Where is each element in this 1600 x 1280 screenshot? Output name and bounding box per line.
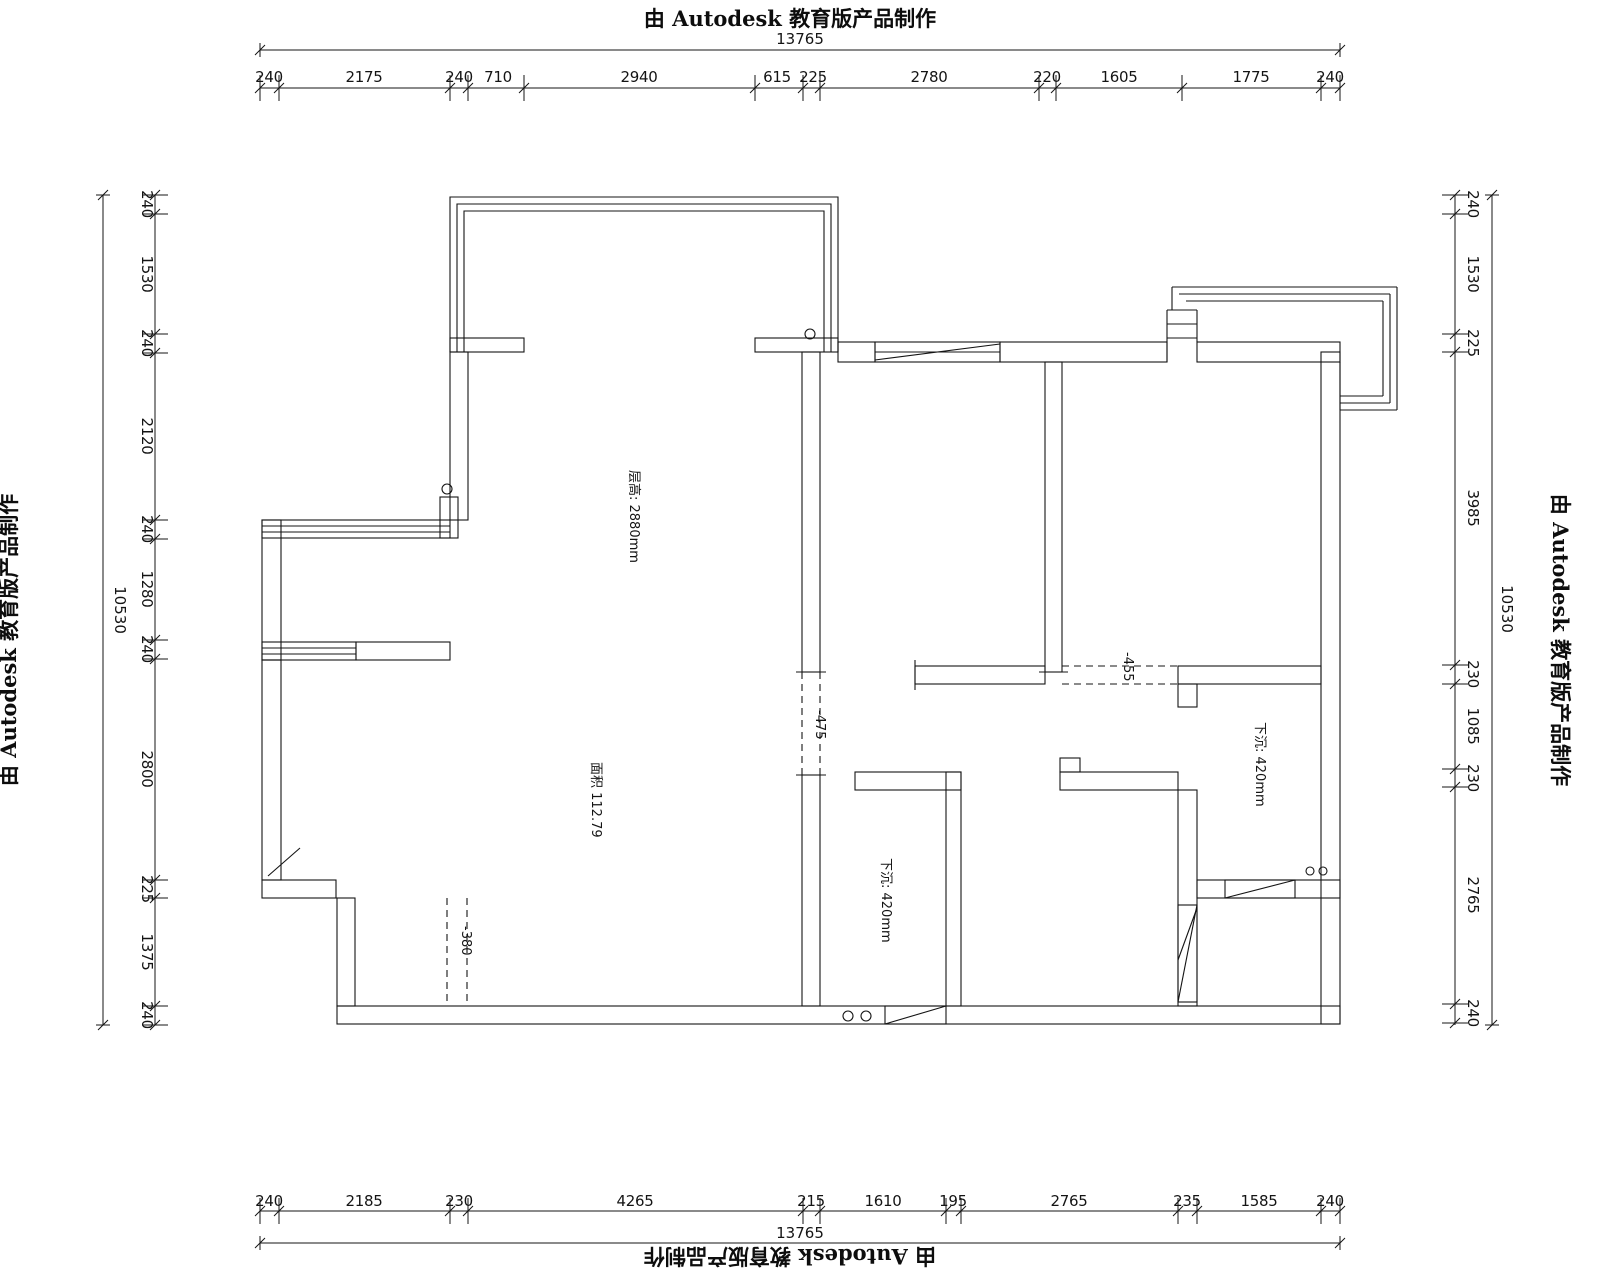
floor-drain-icon bbox=[843, 1011, 853, 1021]
room-label: 层高: 2880mm bbox=[626, 470, 642, 563]
balcony-window bbox=[457, 204, 831, 352]
wall bbox=[1178, 684, 1197, 707]
wall bbox=[337, 898, 355, 1006]
dim-label: 240 bbox=[1316, 1192, 1344, 1210]
dim-label: 230 bbox=[445, 1192, 473, 1210]
bay-window bbox=[262, 642, 356, 660]
dim-label: 1375 bbox=[138, 934, 156, 971]
dim-label: 235 bbox=[1173, 1192, 1201, 1210]
dim-label: 1775 bbox=[1233, 68, 1270, 86]
dim-label: 1280 bbox=[138, 571, 156, 608]
dim-label: 1530 bbox=[138, 256, 156, 293]
level-offset-label: -475 bbox=[812, 710, 827, 740]
dim-label: 4265 bbox=[617, 1192, 654, 1210]
wall bbox=[802, 352, 820, 672]
dim-label: 2765 bbox=[1051, 1192, 1088, 1210]
wall bbox=[262, 660, 281, 880]
floor-plan-walls bbox=[262, 197, 1397, 1024]
wall bbox=[1000, 342, 1167, 362]
chamfer-line bbox=[268, 848, 300, 876]
window bbox=[1225, 880, 1295, 898]
dim-label: 240 bbox=[445, 68, 473, 86]
wall bbox=[1178, 790, 1197, 1006]
dim-label: 240 bbox=[1464, 999, 1482, 1027]
dim-label: 215 bbox=[797, 1192, 825, 1210]
wall bbox=[946, 772, 961, 1006]
dim-labels-right: 10530 240 1530 225 3985 230 1085 230 276… bbox=[1464, 190, 1516, 1027]
cad-floorplan-sheet: 由 Autodesk 教育版产品制作 由 Autodesk 教育版产品制作 由 … bbox=[0, 0, 1600, 1280]
dim-label: 240 bbox=[1316, 68, 1344, 86]
dim-label: 2175 bbox=[346, 68, 383, 86]
wall bbox=[1321, 352, 1340, 1024]
floorplan-canvas: 由 Autodesk 教育版产品制作 由 Autodesk 教育版产品制作 由 … bbox=[0, 0, 1600, 1280]
dim-label: 225 bbox=[799, 68, 827, 86]
wall bbox=[1060, 758, 1080, 772]
dim-label: 240 bbox=[138, 515, 156, 543]
wall bbox=[1045, 362, 1062, 672]
dim-label: 1585 bbox=[1241, 1192, 1278, 1210]
wall bbox=[450, 338, 524, 352]
wall bbox=[802, 775, 820, 1006]
dim-label: 2185 bbox=[346, 1192, 383, 1210]
dim-label: 225 bbox=[1464, 329, 1482, 357]
floor-drain-icon bbox=[861, 1011, 871, 1021]
dim-label: 1610 bbox=[865, 1192, 902, 1210]
dim-label: 230 bbox=[1464, 764, 1482, 792]
wall bbox=[1060, 772, 1178, 790]
dim-label: 1605 bbox=[1101, 68, 1138, 86]
wall bbox=[915, 666, 1045, 684]
bay-window bbox=[262, 520, 450, 538]
wall bbox=[1178, 666, 1321, 684]
dim-label: 220 bbox=[1033, 68, 1061, 86]
steps bbox=[1167, 310, 1197, 362]
room-annotations: 层高: 2880mm 面积 112.79 下沉: 420mm 下沉: 420mm… bbox=[458, 470, 1267, 956]
watermarks: 由 Autodesk 教育版产品制作 由 Autodesk 教育版产品制作 由 … bbox=[0, 6, 1573, 1269]
dim-label: 710 bbox=[484, 68, 512, 86]
wall bbox=[262, 520, 281, 660]
wall bbox=[1197, 342, 1340, 362]
wall bbox=[755, 338, 838, 352]
wall bbox=[1197, 880, 1340, 898]
wall bbox=[855, 772, 961, 790]
wall bbox=[337, 1006, 1340, 1024]
dim-total-label: 10530 bbox=[1498, 585, 1516, 633]
dim-label: 615 bbox=[763, 68, 791, 86]
floor-drain-icon bbox=[1319, 867, 1327, 875]
window bbox=[885, 1006, 946, 1024]
dim-label: 2940 bbox=[621, 68, 658, 86]
dim-label: 2800 bbox=[138, 751, 156, 788]
wall bbox=[450, 352, 468, 520]
wall bbox=[356, 642, 450, 660]
dim-label: 225 bbox=[138, 875, 156, 903]
dim-label: 240 bbox=[138, 190, 156, 218]
dim-labels-left: 10530 240 1530 240 2120 240 1280 240 280… bbox=[111, 190, 156, 1029]
wall bbox=[262, 880, 336, 898]
level-offset-label: -455 bbox=[1120, 652, 1135, 682]
room-label: 面积 112.79 bbox=[588, 762, 603, 838]
wall bbox=[838, 342, 875, 362]
dim-label: 240 bbox=[138, 329, 156, 357]
dim-labels-bottom: 13765 240 2185 230 4265 215 1610 195 276… bbox=[255, 1192, 1344, 1242]
dim-label: 240 bbox=[255, 68, 283, 86]
watermark-top: 由 Autodesk 教育版产品制作 bbox=[644, 6, 936, 31]
watermark-left: 由 Autodesk 教育版产品制作 bbox=[0, 494, 21, 786]
dim-label: 240 bbox=[138, 635, 156, 663]
dim-label: 195 bbox=[939, 1192, 967, 1210]
floor-drain-icon bbox=[1306, 867, 1314, 875]
dim-label: 2765 bbox=[1464, 877, 1482, 914]
dim-total-label: 13765 bbox=[776, 1224, 824, 1242]
watermark-right: 由 Autodesk 教育版产品制作 bbox=[1548, 494, 1573, 786]
dim-total-label: 13765 bbox=[776, 30, 824, 48]
dim-label: 2120 bbox=[138, 418, 156, 455]
balcony-window bbox=[464, 211, 824, 352]
dim-label: 1085 bbox=[1464, 708, 1482, 745]
dim-label: 230 bbox=[1464, 660, 1482, 688]
dim-labels-top: 13765 240 2175 240 710 2940 615 225 2780… bbox=[255, 30, 1344, 86]
dim-label: 3985 bbox=[1464, 490, 1482, 527]
watermark-bottom: 由 Autodesk 教育版产品制作 bbox=[644, 1244, 936, 1269]
dim-label: 1530 bbox=[1464, 256, 1482, 293]
dim-label: 240 bbox=[1464, 190, 1482, 218]
dim-label: 2780 bbox=[911, 68, 948, 86]
dim-label: 240 bbox=[138, 1001, 156, 1029]
dimension-framework bbox=[96, 43, 1499, 1250]
dim-total-label: 10530 bbox=[111, 586, 129, 634]
room-label: 下沉: 420mm bbox=[878, 858, 893, 943]
dim-label: 240 bbox=[255, 1192, 283, 1210]
room-label: 下沉: 420mm bbox=[1252, 722, 1267, 807]
level-offset-label: -380 bbox=[458, 926, 473, 956]
balcony-window bbox=[450, 197, 838, 352]
balcony-window bbox=[1172, 287, 1397, 410]
